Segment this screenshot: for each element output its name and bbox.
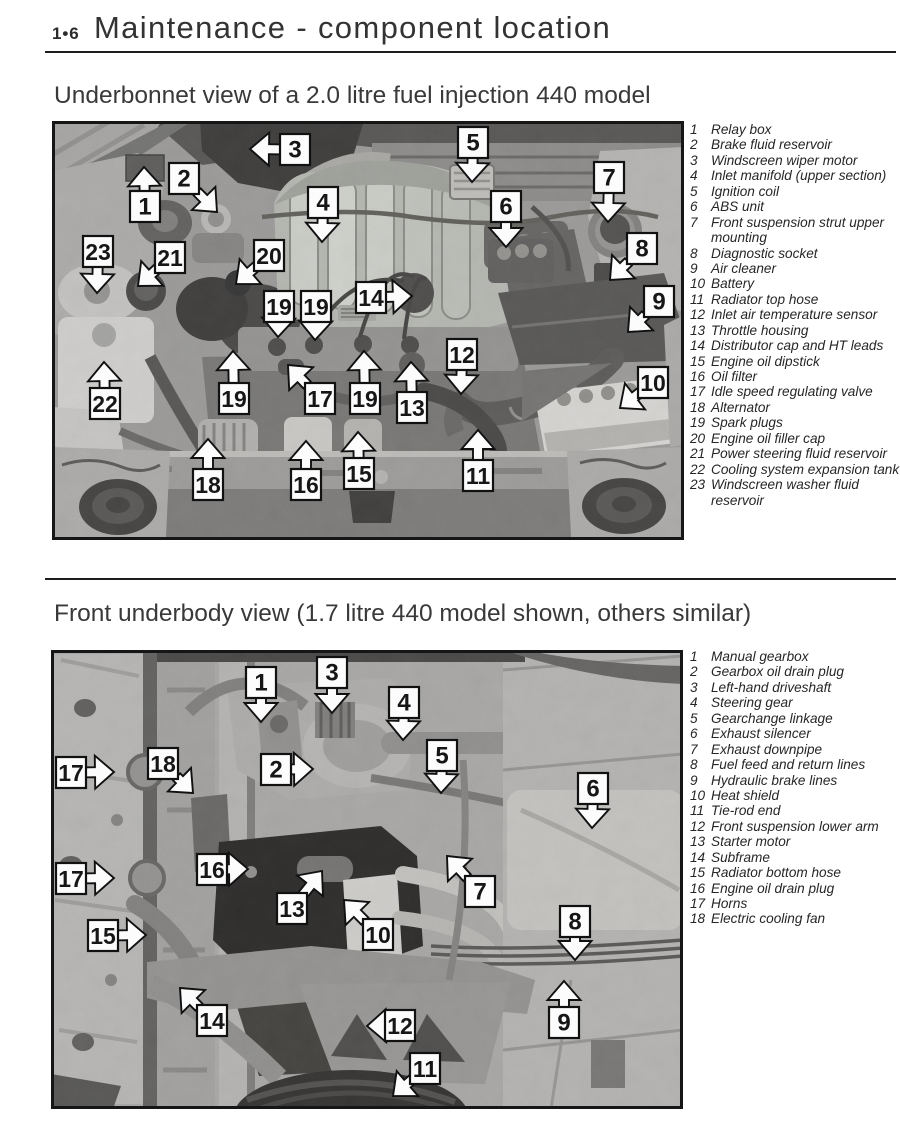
svg-text:10: 10	[640, 370, 666, 396]
svg-text:14: 14	[199, 1008, 225, 1034]
svg-text:12: 12	[387, 1013, 413, 1039]
svg-text:16: 16	[199, 857, 225, 883]
svg-text:19: 19	[352, 386, 378, 412]
svg-text:3: 3	[288, 137, 301, 164]
svg-text:6: 6	[586, 776, 599, 803]
svg-text:2: 2	[177, 166, 190, 193]
svg-text:3: 3	[325, 660, 338, 687]
svg-text:15: 15	[346, 461, 372, 487]
svg-text:1: 1	[254, 670, 267, 697]
svg-text:12: 12	[449, 342, 475, 368]
svg-text:22: 22	[92, 391, 118, 417]
svg-text:17: 17	[58, 866, 84, 892]
svg-text:4: 4	[397, 690, 411, 717]
svg-text:16: 16	[293, 472, 319, 498]
svg-text:15: 15	[90, 923, 116, 949]
svg-text:19: 19	[266, 294, 292, 320]
svg-text:10: 10	[365, 922, 391, 948]
svg-text:8: 8	[635, 236, 648, 263]
svg-text:7: 7	[473, 879, 486, 906]
svg-text:5: 5	[435, 743, 448, 770]
svg-text:18: 18	[195, 472, 221, 498]
svg-text:18: 18	[150, 751, 176, 777]
svg-text:21: 21	[157, 245, 183, 271]
svg-text:20: 20	[256, 243, 282, 269]
svg-text:2: 2	[269, 757, 282, 784]
svg-text:6: 6	[499, 194, 512, 221]
svg-text:11: 11	[466, 463, 491, 489]
svg-text:14: 14	[358, 285, 384, 311]
svg-text:17: 17	[307, 386, 333, 412]
svg-text:19: 19	[221, 386, 247, 412]
svg-text:23: 23	[85, 239, 111, 265]
svg-text:7: 7	[602, 165, 615, 192]
svg-text:8: 8	[568, 909, 581, 936]
svg-text:17: 17	[58, 760, 84, 786]
svg-text:5: 5	[466, 130, 479, 157]
svg-text:9: 9	[652, 289, 665, 316]
svg-text:13: 13	[279, 896, 305, 922]
svg-text:13: 13	[399, 395, 425, 421]
svg-text:19: 19	[303, 294, 329, 320]
svg-text:1: 1	[138, 194, 151, 221]
svg-text:9: 9	[557, 1010, 570, 1037]
svg-text:4: 4	[316, 190, 330, 217]
svg-text:11: 11	[413, 1056, 438, 1082]
